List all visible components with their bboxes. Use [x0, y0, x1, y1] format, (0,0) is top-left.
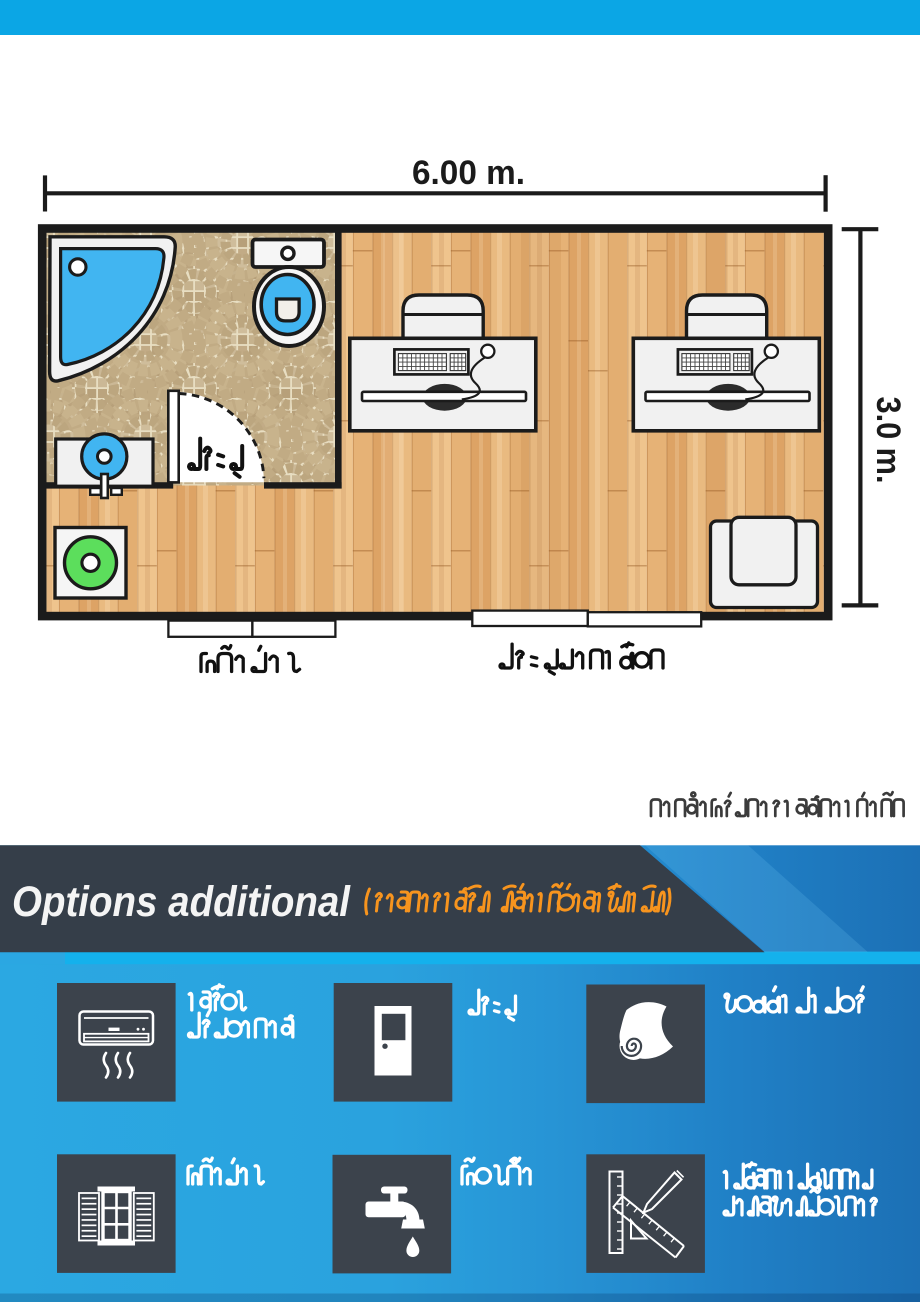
- svg-text:Options additional: Options additional: [12, 878, 351, 926]
- svg-text:3.0 m.: 3.0 m.: [869, 397, 907, 484]
- svg-text:6.00 m.: 6.00 m.: [412, 154, 525, 192]
